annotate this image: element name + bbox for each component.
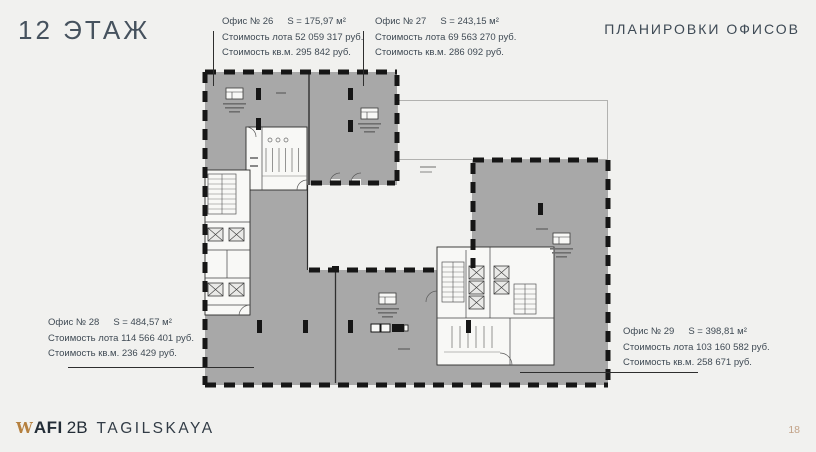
office-27-price-sqm: Стоимость кв.м. 286 092 руб. — [375, 45, 516, 61]
brand-logo: W AFI 2B TAGILSKAYA — [16, 418, 215, 438]
page-number: 18 — [788, 424, 800, 436]
furniture — [371, 324, 408, 332]
core-bottom-right — [426, 247, 554, 365]
office-28-name: Офис № 28 — [48, 315, 99, 331]
brand-project: TAGILSKAYA — [97, 420, 215, 438]
office-28-area: S = 484,57 м² — [113, 315, 172, 331]
terrace-outline — [398, 101, 608, 160]
office-26-name: Офис № 26 — [222, 14, 273, 30]
office-28-price-lot: Стоимость лота 114 566 401 руб. — [48, 331, 194, 347]
office-29-price-sqm: Стоимость кв.м. 258 671 руб. — [623, 355, 770, 371]
office-27-name: Офис № 27 — [375, 14, 426, 30]
office-27-price-lot: Стоимость лота 69 563 270 руб. — [375, 30, 516, 46]
brand-suffix: 2B — [67, 418, 88, 438]
office-29-name: Офис № 29 — [623, 324, 674, 340]
office-27-label: Офис № 27 S = 243,15 м² Стоимость лота 6… — [375, 14, 516, 61]
office-26-label: Офис № 26 S = 175,97 м² Стоимость лота 5… — [222, 14, 363, 61]
brochure-page: 12 ЭТАЖ ПЛАНИРОВКИ ОФИСОВ — [0, 0, 816, 452]
office-26-price-lot: Стоимость лота 52 059 317 руб. — [222, 30, 363, 46]
office-27-area: S = 243,15 м² — [440, 14, 499, 30]
office-28-label: Офис № 28 S = 484,57 м² Стоимость лота 1… — [48, 315, 194, 362]
brand-mark-icon: W — [16, 419, 33, 437]
brand-name: AFI — [34, 418, 63, 438]
floor-plan — [0, 0, 816, 452]
office-28-price-sqm: Стоимость кв.м. 236 429 руб. — [48, 346, 194, 362]
core-top-left — [246, 127, 307, 190]
office-29-price-lot: Стоимость лота 103 160 582 руб. — [623, 340, 770, 356]
office-29-area: S = 398,81 м² — [688, 324, 747, 340]
office-26-area: S = 175,97 м² — [287, 14, 346, 30]
office-26-price-sqm: Стоимость кв.м. 295 842 руб. — [222, 45, 363, 61]
core-left-stairs — [205, 170, 250, 315]
office-29-label: Офис № 29 S = 398,81 м² Стоимость лота 1… — [623, 324, 770, 371]
